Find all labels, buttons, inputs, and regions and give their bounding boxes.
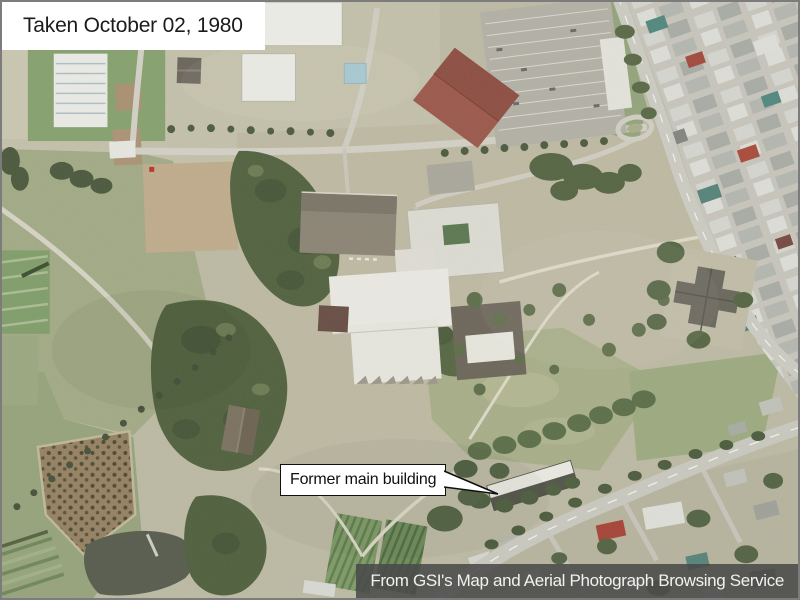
aerial-photo <box>2 2 798 598</box>
photo-texture <box>2 2 798 598</box>
callout-pointer-icon <box>444 464 500 496</box>
former-main-building-callout: Former main building <box>280 464 500 496</box>
callout-label: Former main building <box>280 464 446 496</box>
capture-date-label: Taken October 02, 1980 <box>2 2 265 50</box>
annotated-aerial-photo: Taken October 02, 1980 Former main build… <box>0 0 800 600</box>
credit-banner: From GSI's Map and Aerial Photograph Bro… <box>356 564 798 598</box>
